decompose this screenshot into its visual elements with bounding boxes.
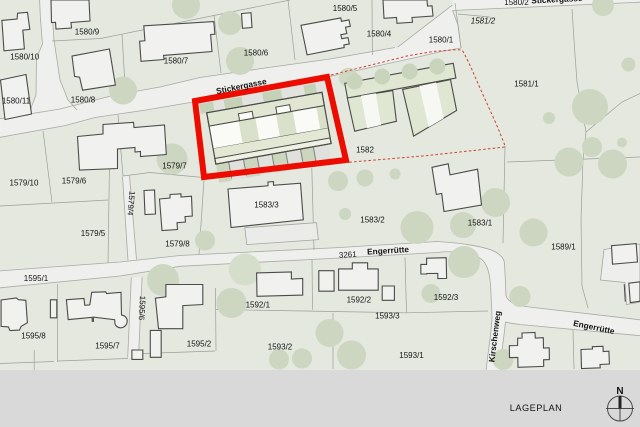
svg-text:1592/2: 1592/2 (347, 295, 372, 304)
svg-text:1583/2: 1583/2 (360, 216, 385, 225)
svg-text:1582: 1582 (356, 146, 374, 155)
svg-text:1580/10: 1580/10 (10, 53, 39, 62)
svg-text:1580/4: 1580/4 (367, 29, 392, 38)
svg-text:1593/2: 1593/2 (268, 343, 293, 352)
svg-text:1595/1: 1595/1 (24, 274, 49, 283)
svg-text:1595/8: 1595/8 (21, 332, 46, 341)
svg-text:1579/10: 1579/10 (10, 179, 39, 188)
svg-text:1580/8: 1580/8 (71, 95, 96, 104)
svg-text:1592/3: 1592/3 (434, 293, 459, 302)
svg-text:1580/5: 1580/5 (333, 4, 358, 13)
svg-text:1583/1: 1583/1 (468, 219, 493, 228)
svg-text:1579/8: 1579/8 (165, 240, 190, 249)
svg-text:1583/3: 1583/3 (254, 201, 279, 210)
svg-text:1580/9: 1580/9 (75, 28, 100, 37)
svg-text:1581/2: 1581/2 (471, 17, 496, 26)
svg-text:1595/6: 1595/6 (137, 296, 147, 321)
svg-text:1589/1: 1589/1 (551, 243, 576, 252)
svg-text:1595/7: 1595/7 (95, 342, 120, 351)
svg-text:1579/7: 1579/7 (162, 162, 187, 171)
svg-text:1580/6: 1580/6 (244, 49, 269, 58)
svg-text:1580/1: 1580/1 (429, 35, 454, 44)
svg-text:1581/1: 1581/1 (514, 80, 539, 89)
svg-text:1593/1: 1593/1 (399, 351, 424, 360)
svg-text:N: N (616, 386, 623, 397)
svg-text:1579/6: 1579/6 (62, 177, 87, 186)
svg-text:1580/2: 1580/2 (504, 0, 529, 7)
svg-text:1580/11: 1580/11 (2, 97, 31, 106)
svg-text:1580/7: 1580/7 (164, 56, 189, 65)
svg-text:3261: 3261 (339, 250, 358, 260)
svg-text:1579/5: 1579/5 (81, 229, 106, 238)
svg-text:1595/2: 1595/2 (187, 340, 212, 349)
svg-text:1592/1: 1592/1 (246, 301, 271, 310)
svg-text:LAGEPLAN: LAGEPLAN (510, 403, 563, 413)
svg-text:1593/3: 1593/3 (375, 312, 400, 321)
